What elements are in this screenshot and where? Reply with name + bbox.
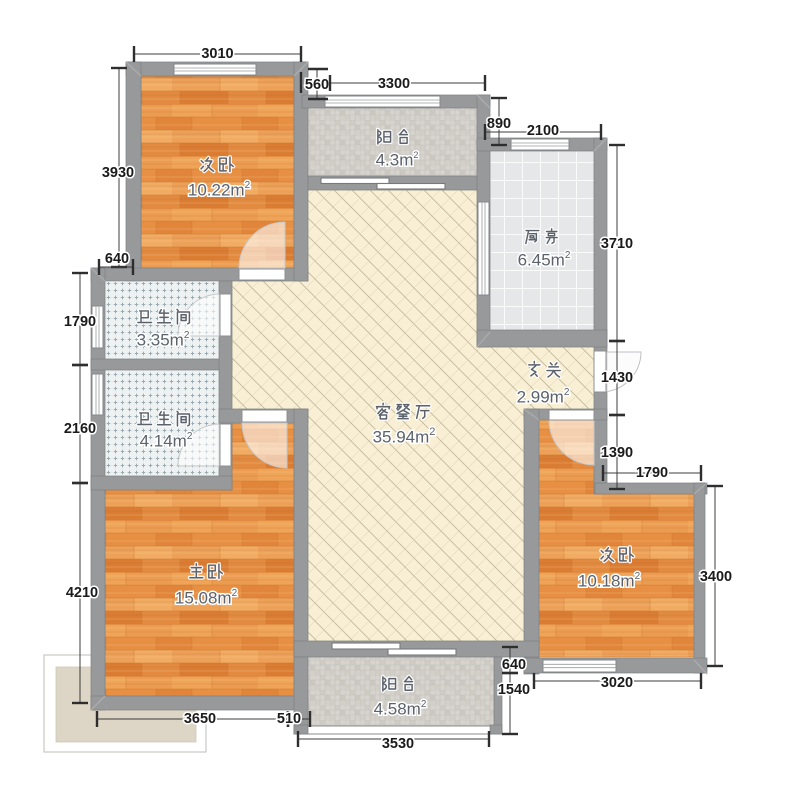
svg-text:2160: 2160 (64, 421, 96, 437)
svg-text:1430: 1430 (601, 370, 633, 386)
svg-text:1540: 1540 (498, 682, 530, 698)
svg-text:640: 640 (105, 251, 129, 267)
svg-text:3930: 3930 (102, 165, 134, 181)
svg-text:4.14m2: 4.14m2 (140, 431, 193, 451)
svg-text:3530: 3530 (382, 736, 414, 752)
svg-text:4210: 4210 (66, 585, 98, 601)
svg-text:35.94m2: 35.94m2 (373, 426, 436, 447)
svg-text:1390: 1390 (601, 445, 633, 461)
svg-text:640: 640 (502, 657, 526, 673)
svg-text:3010: 3010 (201, 46, 233, 62)
svg-text:3300: 3300 (378, 76, 410, 92)
svg-text:6.45m2: 6.45m2 (518, 250, 571, 270)
svg-text:15.08m2: 15.08m2 (175, 588, 238, 608)
svg-text:510: 510 (277, 711, 301, 727)
svg-text:3.35m2: 3.35m2 (137, 330, 190, 350)
svg-text:2.99m2: 2.99m2 (517, 387, 570, 407)
svg-text:10.18m2: 10.18m2 (578, 571, 641, 591)
svg-text:3400: 3400 (700, 569, 732, 585)
svg-text:2100: 2100 (527, 123, 559, 139)
svg-text:560: 560 (305, 77, 329, 93)
svg-text:4.3m2: 4.3m2 (376, 150, 419, 170)
svg-text:3020: 3020 (601, 675, 633, 691)
svg-text:4.58m2: 4.58m2 (374, 699, 427, 719)
svg-text:890: 890 (487, 116, 511, 132)
svg-text:10.22m2: 10.22m2 (188, 180, 251, 200)
svg-text:1790: 1790 (64, 314, 96, 330)
svg-text:3710: 3710 (601, 236, 633, 252)
svg-text:3650: 3650 (184, 711, 216, 727)
svg-text:1790: 1790 (636, 465, 668, 481)
